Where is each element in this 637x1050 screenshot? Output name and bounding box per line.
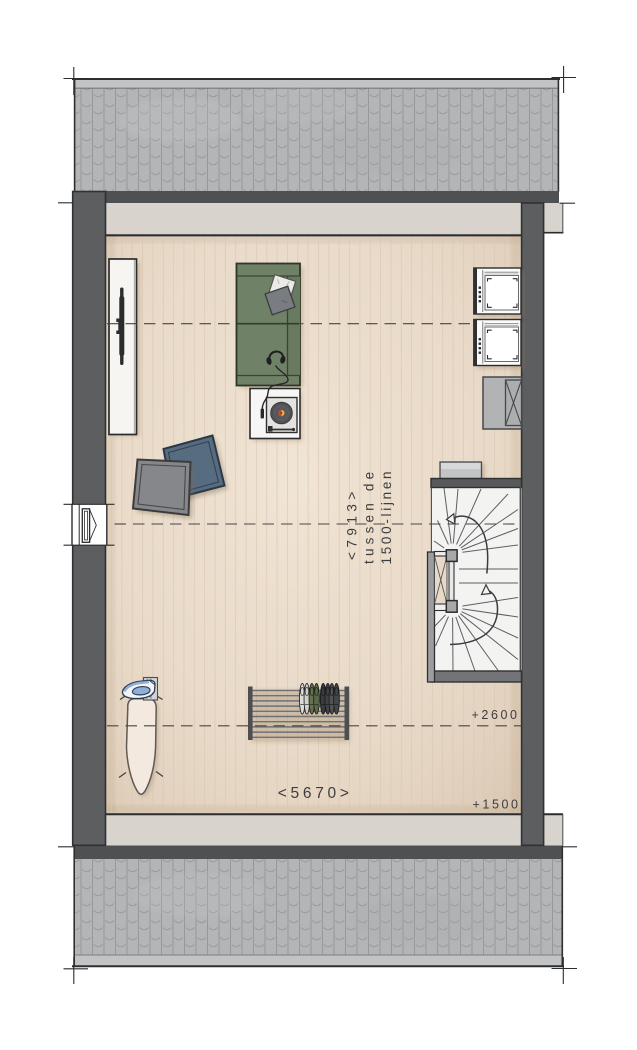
svg-text:<5670>: <5670> xyxy=(278,785,353,802)
svg-text:<7913>: <7913> xyxy=(345,487,360,560)
svg-text:+2600: +2600 xyxy=(472,708,520,722)
svg-text:1500-lijnen: 1500-lijnen xyxy=(379,469,394,565)
svg-text:tussen de: tussen de xyxy=(362,468,377,564)
svg-text:+1500: +1500 xyxy=(473,798,521,812)
